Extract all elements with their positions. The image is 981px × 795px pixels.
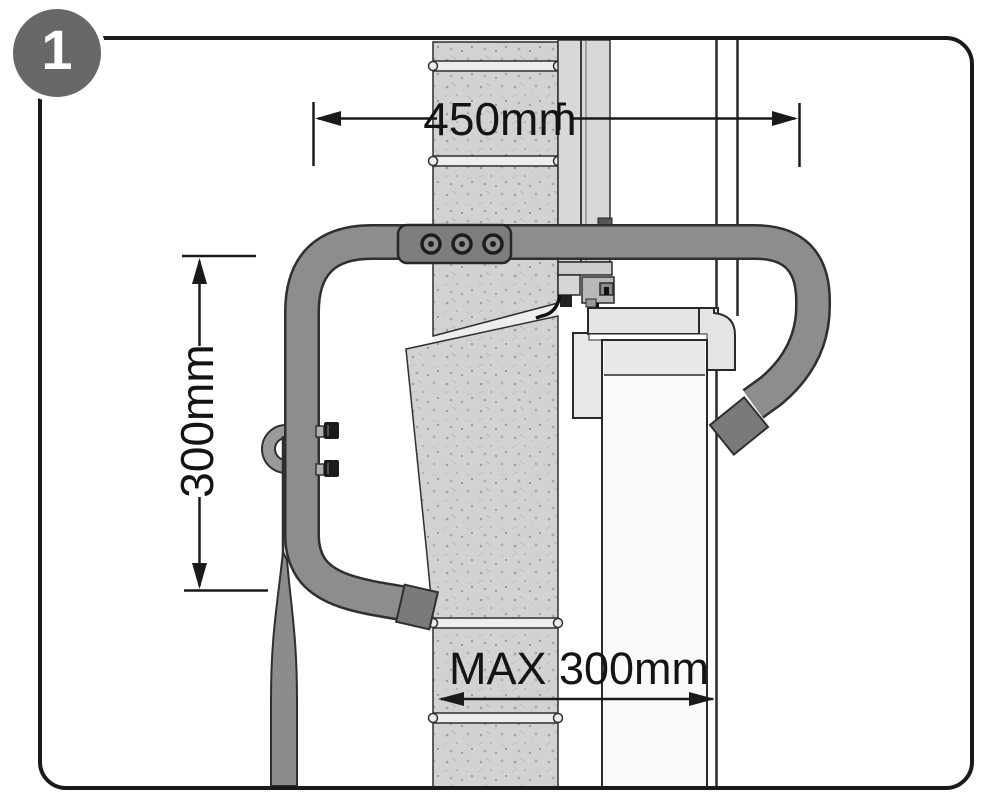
dimension-label-450mm: 450mm bbox=[390, 92, 610, 146]
brick-row bbox=[433, 42, 558, 61]
arrowhead-right bbox=[772, 111, 798, 126]
step-number-label: 1 bbox=[41, 17, 72, 82]
dimension-label-300mm: 300mm bbox=[170, 344, 224, 497]
shutter-box-header bbox=[604, 341, 705, 375]
bolt-holes bbox=[422, 235, 502, 253]
arrowhead-left bbox=[315, 111, 341, 126]
safety-strap bbox=[271, 552, 297, 786]
dimension-label-max-300mm: MAX 300mm bbox=[438, 643, 720, 695]
brick-row bbox=[433, 723, 558, 788]
bracket-plate bbox=[398, 225, 511, 263]
shutter-curtain-box bbox=[602, 340, 707, 788]
shutter-side-strip bbox=[573, 333, 602, 418]
arrowhead-down bbox=[192, 563, 207, 589]
installation-step-figure: 1 450mm 300mm MAX 300mm bbox=[0, 0, 981, 795]
arrowhead-up bbox=[192, 258, 207, 284]
tilted-sill-brick bbox=[406, 316, 558, 618]
roller-shutter-box bbox=[573, 308, 735, 788]
tube-end-cap-bottom bbox=[396, 585, 438, 630]
